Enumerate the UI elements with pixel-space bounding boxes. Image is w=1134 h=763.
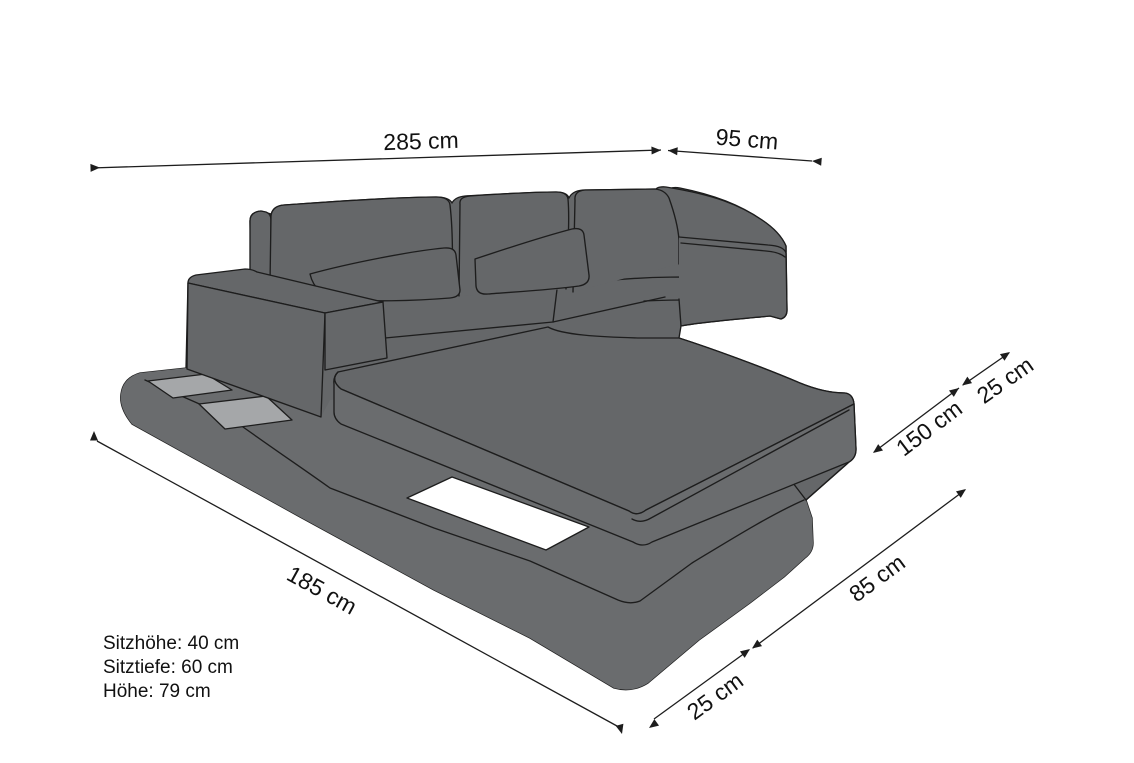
svg-text:Höhe: 79 cm: Höhe: 79 cm [103,681,211,702]
svg-text:95 cm: 95 cm [715,124,780,155]
svg-text:285 cm: 285 cm [383,127,459,155]
svg-text:Sitzhöhe: 40 cm: Sitzhöhe: 40 cm [103,633,239,654]
svg-text:Sitztiefe: 60 cm: Sitztiefe: 60 cm [103,657,233,678]
